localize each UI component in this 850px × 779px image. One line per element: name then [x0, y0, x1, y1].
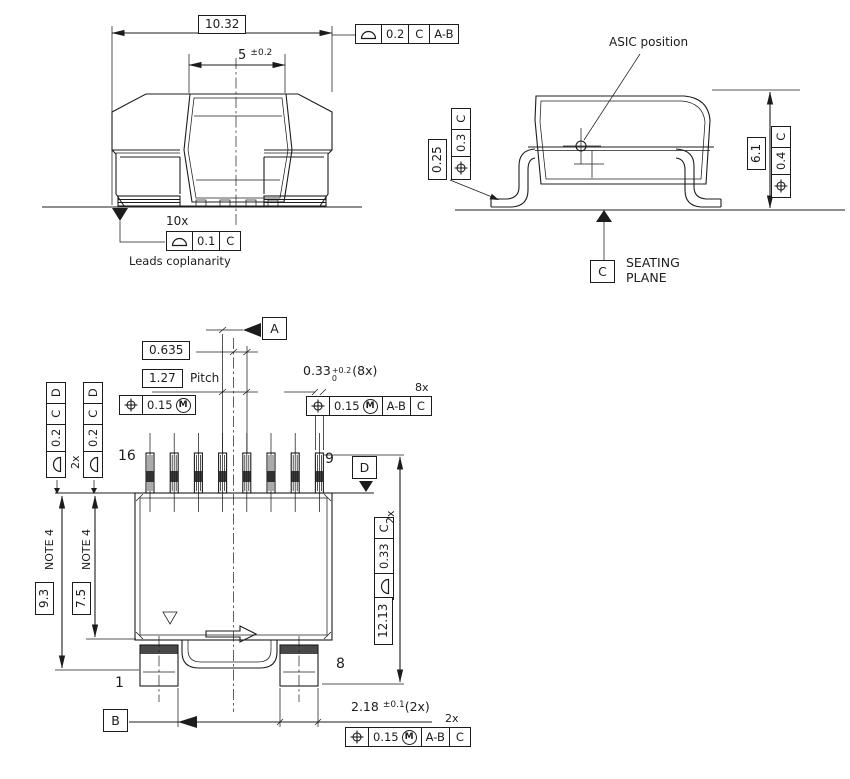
flow-arrow [206, 626, 256, 642]
fcf-tolerance: 0.15M [329, 397, 382, 415]
position-icon [772, 175, 790, 197]
note4-label-a: NOTE 4 [43, 529, 56, 570]
fcf-datum: C [452, 109, 470, 130]
front-datum-triangle [112, 208, 128, 221]
fcf-datum: C [408, 25, 429, 43]
lead-count-label: 10x [166, 214, 188, 228]
asic-position-marker [576, 141, 586, 151]
note4-label-b: NOTE 4 [80, 529, 93, 570]
pin-9-label: 9 [325, 451, 334, 467]
coplanarity-fcf: 0.1 C [166, 231, 241, 251]
body-length-dim: 7.5 [72, 582, 91, 615]
datum-c-box: C [590, 260, 615, 283]
fcf-tolerance: 0.15M [142, 396, 195, 414]
mmc-icon: M [402, 730, 417, 745]
fcf-tolerance: 0.1 [192, 232, 219, 250]
fcf-tolerance: 0.2 [47, 425, 65, 452]
fcf-datum: C [219, 232, 240, 250]
pin1-marker [163, 612, 177, 624]
side-edge-fcf-count: 2x [384, 510, 397, 524]
front-width-dim: 10.32 [198, 15, 246, 34]
pitch-label: Pitch [190, 371, 219, 385]
datum-a-arrow [243, 323, 261, 337]
position-icon [346, 728, 368, 746]
fcf-datum: D [84, 383, 102, 404]
datum-d-triangle [359, 481, 373, 492]
fcf-datum: C [449, 728, 470, 746]
front-top-fcf: 0.2 C A-B [355, 24, 459, 44]
position-icon [452, 157, 470, 179]
pitch-fcf: 0.15M [119, 395, 196, 415]
bottom-fcf-count: 2x [445, 712, 459, 725]
fcf-tolerance: 0.15M [368, 728, 421, 746]
datum-b-box: B [103, 709, 128, 732]
position-icon [120, 396, 142, 414]
fcf-datum: C [410, 397, 431, 415]
seating-plane-label: SEATINGPLANE [626, 255, 680, 285]
fcf-tolerance: 0.4 [772, 148, 790, 175]
side-edge-fcf: 0.33 C [374, 517, 394, 600]
mmc-icon: M [363, 399, 378, 414]
front-view-drawing [42, 26, 362, 242]
fcf-tolerance: 0.2 [84, 425, 102, 452]
datum-b-arrow [178, 716, 197, 728]
height-dim: 6.1 [747, 137, 766, 170]
front-cap-dim: 5 ±0.2 [238, 48, 272, 63]
edge-fcf-1: 0.2 C D [46, 382, 66, 478]
pin-16-label: 16 [118, 448, 136, 464]
position-icon [307, 397, 329, 415]
pitch-dim: 1.27 [142, 369, 183, 388]
datum-a-box: A [262, 317, 287, 340]
profile-surface-icon [167, 232, 192, 250]
datum-d-box: D [352, 456, 377, 479]
mmc-icon: M [176, 398, 191, 413]
profile-surface-icon [84, 452, 102, 477]
pin-8-label: 8 [336, 656, 345, 672]
side-left-fcf: 0.3 C [451, 108, 471, 180]
profile-surface-icon [375, 574, 393, 599]
edge-fcf-count: 2x [69, 455, 82, 469]
package-outline-drawing: 10.32 0.2 C A-B 5 ±0.2 10x 0.1 C Leads c… [0, 0, 850, 779]
fcf-datum: A-B [429, 25, 457, 43]
pin-1-label: 1 [115, 675, 124, 691]
total-length-dim: 12.13 [374, 597, 393, 645]
fcf-datum: D [47, 383, 65, 404]
fcf-datum: C [772, 127, 790, 148]
lead-fcf-count: 8x [415, 381, 429, 394]
profile-surface-icon [47, 452, 65, 477]
pad-width-dim: 2.18 ±0.1(2x) [351, 699, 430, 714]
fcf-tolerance: 0.33 [375, 539, 393, 574]
fcf-tolerance: 0.2 [381, 25, 408, 43]
asic-position-label: ASIC position [609, 35, 688, 49]
lead-fcf: 0.15M A-B C [306, 396, 432, 416]
lead-width-dim: 0.33+0.20(8x) [303, 363, 377, 383]
bottom-fcf: 0.15M A-B C [345, 727, 471, 747]
fcf-datum: A-B [382, 397, 410, 415]
offset-dim: 0.635 [142, 341, 190, 360]
profile-surface-icon [356, 25, 381, 43]
standoff-dim: 0.25 [428, 139, 447, 180]
fcf-tolerance: 0.3 [452, 130, 470, 157]
fcf-datum: A-B [421, 728, 449, 746]
fcf-datum: C [47, 404, 65, 425]
side-right-fcf: 0.4 C [771, 126, 791, 198]
fcf-datum: C [84, 404, 102, 425]
edge-fcf-2: 0.2 C D [83, 382, 103, 478]
coplanarity-caption: Leads coplanarity [129, 254, 231, 268]
seating-datum-triangle [596, 210, 612, 222]
pad-length-dim: 9.3 [35, 582, 54, 615]
